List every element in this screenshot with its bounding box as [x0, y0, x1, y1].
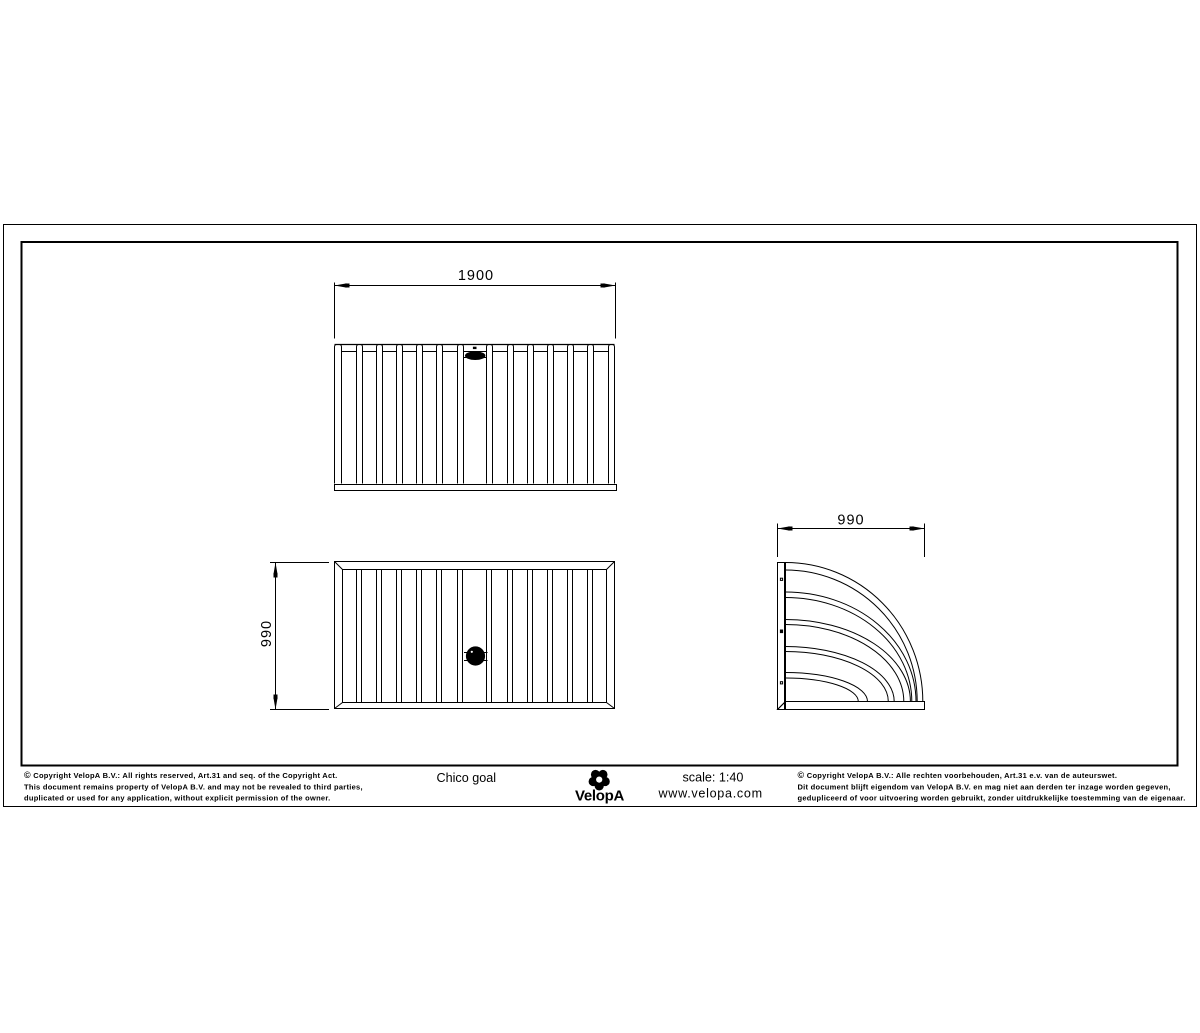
svg-text:© Copyright VelopA B.V.: Alle: © Copyright VelopA B.V.: Alle rechten vo… [798, 770, 1118, 780]
svg-text:Chico goal: Chico goal [437, 771, 497, 785]
svg-text:1900: 1900 [458, 268, 494, 284]
svg-text:This document remains property: This document remains property of VelopA… [24, 782, 363, 791]
svg-text:990: 990 [259, 620, 275, 647]
svg-text:gedupliceerd of voor uitvoerin: gedupliceerd of voor uitvoering worden g… [798, 793, 1186, 802]
svg-text:Dit document blijft eigendom v: Dit document blijft eigendom van VelopA … [798, 782, 1171, 791]
svg-text:990: 990 [837, 513, 864, 529]
svg-text:www.velopa.com: www.velopa.com [658, 787, 763, 801]
svg-text:© Copyright VelopA B.V.: All r: © Copyright VelopA B.V.: All rights rese… [24, 770, 338, 780]
svg-text:scale: 1:40: scale: 1:40 [683, 771, 744, 785]
svg-text:duplicated or used for any app: duplicated or used for any application, … [24, 793, 331, 802]
svg-text:VelopA: VelopA [575, 788, 625, 805]
